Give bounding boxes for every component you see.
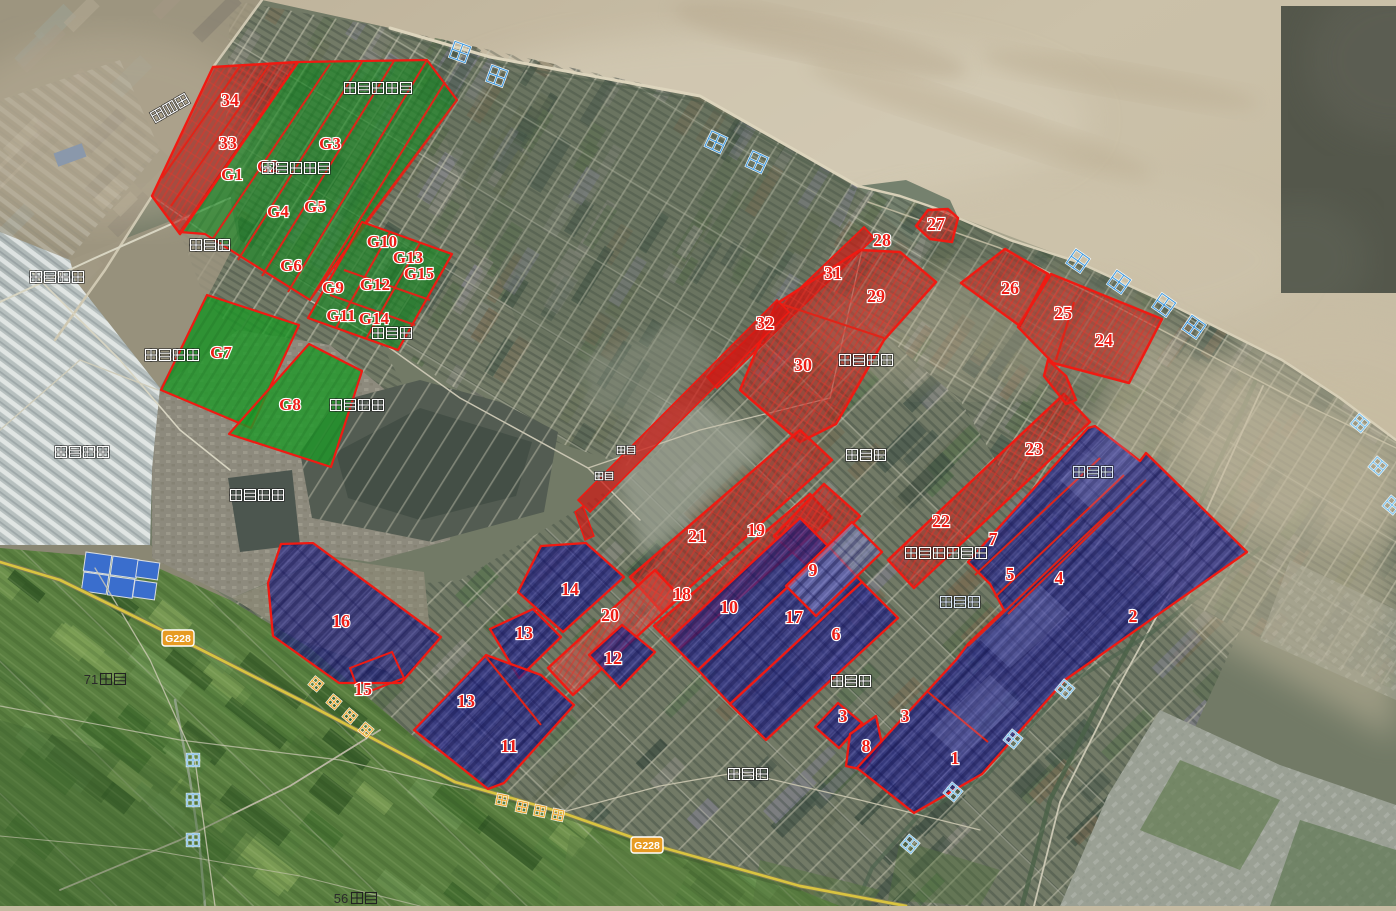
svg-text:20: 20: [601, 605, 619, 625]
svg-text:G11: G11: [326, 306, 355, 325]
svg-text:71: 71: [84, 672, 98, 687]
svg-text:G9: G9: [322, 278, 344, 297]
svg-text:18: 18: [673, 584, 691, 604]
svg-text:G8: G8: [279, 395, 301, 414]
svg-text:6: 6: [832, 624, 841, 644]
svg-text:32: 32: [756, 313, 774, 333]
svg-text:14: 14: [561, 579, 579, 599]
svg-text:25: 25: [1054, 303, 1072, 323]
svg-text:34: 34: [221, 90, 239, 110]
svg-text:13: 13: [515, 623, 533, 643]
svg-text:33: 33: [219, 133, 237, 153]
svg-text:3: 3: [901, 706, 910, 726]
svg-text:5: 5: [1006, 564, 1015, 584]
svg-text:22: 22: [932, 511, 950, 531]
svg-text:G4: G4: [267, 202, 289, 221]
svg-text:8: 8: [862, 736, 871, 756]
svg-text:13: 13: [457, 691, 475, 711]
svg-text:23: 23: [1025, 439, 1043, 459]
svg-text:56: 56: [334, 891, 348, 906]
svg-text:12: 12: [604, 648, 622, 668]
svg-text:29: 29: [867, 286, 885, 306]
svg-text:10: 10: [720, 597, 738, 617]
svg-text:19: 19: [747, 520, 765, 540]
svg-text:G12: G12: [360, 275, 390, 294]
svg-text:G15: G15: [404, 264, 434, 283]
svg-text:7: 7: [989, 529, 998, 549]
svg-text:27: 27: [927, 214, 945, 234]
svg-text:15: 15: [354, 679, 372, 699]
svg-text:31: 31: [824, 263, 842, 283]
svg-text:G228: G228: [165, 633, 191, 645]
svg-text:1: 1: [951, 748, 960, 768]
svg-text:9: 9: [809, 560, 818, 580]
svg-text:24: 24: [1095, 330, 1113, 350]
svg-text:G3: G3: [319, 134, 341, 153]
svg-text:16: 16: [332, 611, 350, 631]
svg-text:G1: G1: [221, 165, 243, 184]
svg-text:21: 21: [688, 526, 706, 546]
svg-text:2: 2: [1129, 606, 1138, 626]
svg-text:26: 26: [1001, 278, 1019, 298]
svg-text:17: 17: [785, 607, 803, 627]
svg-text:G228: G228: [634, 840, 660, 852]
svg-text:11: 11: [500, 736, 517, 756]
svg-text:G5: G5: [304, 197, 326, 216]
svg-text:4: 4: [1055, 568, 1064, 588]
svg-text:G14: G14: [359, 309, 390, 328]
svg-text:28: 28: [873, 230, 891, 250]
svg-text:G6: G6: [280, 256, 302, 275]
svg-text:3: 3: [839, 706, 848, 726]
svg-text:G7: G7: [210, 343, 232, 362]
svg-text:30: 30: [794, 355, 812, 375]
